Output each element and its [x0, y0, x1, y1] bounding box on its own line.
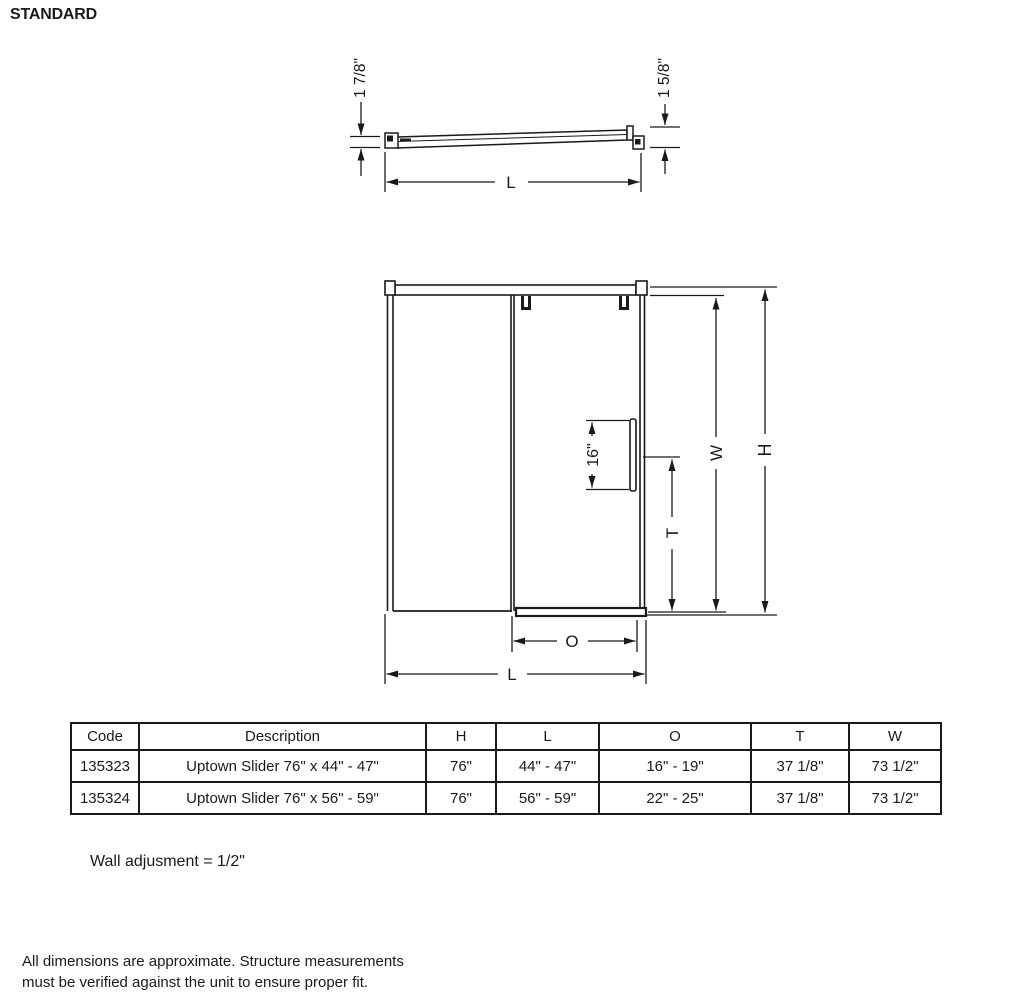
table-row: 135323 Uptown Slider 76" x 44" - 47" 76"…: [71, 750, 941, 782]
dim-track-length-label: L: [506, 173, 515, 192]
dim-left-thickness: 1 7/8": [350, 58, 380, 176]
cell-code: 135324: [71, 782, 139, 814]
table-header-row: Code Description H L O T W: [71, 723, 941, 750]
bottom-extension-lines: [647, 612, 777, 615]
cell-h: 76": [426, 782, 496, 814]
header-w: W: [849, 723, 941, 750]
left-wall-profile: [388, 295, 394, 611]
cell-w: 73 1/2": [849, 750, 941, 782]
dim-l-front: L: [385, 614, 646, 684]
disclaimer-line-1: All dimensions are approximate. Structur…: [22, 951, 404, 972]
disclaimer-note: All dimensions are approximate. Structur…: [22, 951, 404, 993]
cell-t: 37 1/8": [751, 782, 849, 814]
panel-overlap-edge: [511, 295, 514, 611]
door-front-view-drawing: 16" T W H O L: [375, 273, 785, 693]
track-top-view-drawing: 1 7/8" 1 5/8" L: [330, 40, 700, 205]
dim-right-thickness-label: 1 5/8": [656, 58, 673, 98]
cell-code: 135323: [71, 750, 139, 782]
wall-adjustment-note: Wall adjusment = 1/2": [90, 853, 245, 871]
header-description: Description: [139, 723, 426, 750]
spec-table: Code Description H L O T W 135323 Uptown…: [70, 722, 942, 815]
dim-h-label: H: [755, 444, 775, 457]
roller-bracket-right: [621, 296, 628, 309]
dim-w-label: W: [707, 445, 726, 461]
disclaimer-line-2: must be verified against the unit to ens…: [22, 972, 404, 993]
door-bottom-rail: [516, 608, 646, 616]
dim-handle-16: 16": [585, 421, 629, 490]
track-bar: [385, 126, 644, 149]
table-row: 135324 Uptown Slider 76" x 56" - 59" 76"…: [71, 782, 941, 814]
cell-h: 76": [426, 750, 496, 782]
shower-door-unit: [385, 281, 647, 617]
header-o: O: [599, 723, 751, 750]
dim-t-label: T: [663, 528, 682, 538]
dim-l-front-label: L: [507, 665, 516, 684]
cell-description: Uptown Slider 76" x 44" - 47": [139, 750, 426, 782]
dim-w: W: [650, 296, 726, 611]
cell-l: 44" - 47": [496, 750, 599, 782]
page-title: STANDARD: [10, 6, 97, 24]
dim-right-thickness: 1 5/8": [650, 58, 680, 174]
cell-description: Uptown Slider 76" x 56" - 59": [139, 782, 426, 814]
header-left-cap: [385, 281, 395, 295]
spec-sheet: { "page": { "title": "STANDARD", "wall_n…: [0, 0, 1024, 1007]
cell-t: 37 1/8": [751, 750, 849, 782]
dim-t: T: [643, 457, 682, 611]
header-t: T: [751, 723, 849, 750]
dim-left-thickness-label: 1 7/8": [352, 58, 369, 98]
door-right-edge: [640, 295, 645, 617]
roller-bracket-left: [523, 296, 530, 309]
cell-l: 56" - 59": [496, 782, 599, 814]
door-handle: [630, 419, 636, 491]
cell-o: 16" - 19": [599, 750, 751, 782]
dim-o-label: O: [565, 632, 578, 651]
header-right-cap: [636, 281, 647, 295]
dim-o: O: [512, 616, 637, 652]
cell-o: 22" - 25": [599, 782, 751, 814]
cell-w: 73 1/2": [849, 782, 941, 814]
header-l: L: [496, 723, 599, 750]
dim-handle-16-label: 16": [585, 443, 602, 466]
header-h: H: [426, 723, 496, 750]
header-code: Code: [71, 723, 139, 750]
dim-track-length: L: [385, 152, 641, 192]
